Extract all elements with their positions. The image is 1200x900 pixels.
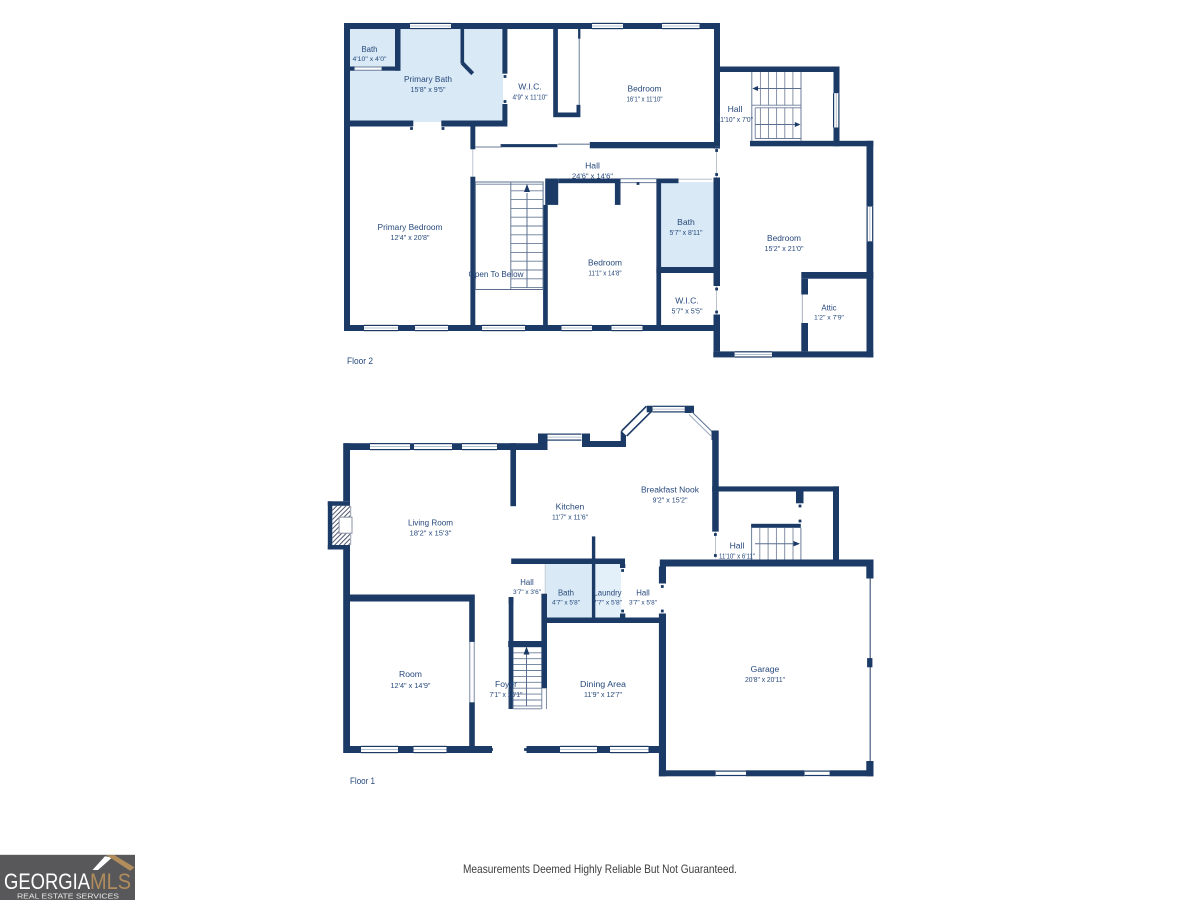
svg-text:Floor 1: Floor 1 (350, 776, 375, 786)
svg-text:Primary Bedroom: Primary Bedroom (378, 222, 443, 232)
svg-text:18'2" x 15'3": 18'2" x 15'3" (410, 528, 452, 537)
svg-text:Hall: Hall (636, 589, 650, 598)
svg-text:11'10" x 6'11": 11'10" x 6'11" (719, 551, 755, 560)
svg-text:4'10" x 4'0": 4'10" x 4'0" (353, 56, 388, 63)
svg-text:Primary Bath: Primary Bath (404, 74, 452, 84)
svg-text:3'7" x 3'6": 3'7" x 3'6" (513, 589, 542, 596)
svg-text:REAL ESTATE SERVICES: REAL ESTATE SERVICES (17, 892, 119, 900)
svg-text:20'8" x 20'11": 20'8" x 20'11" (745, 675, 785, 684)
svg-text:1'2" x 7'9": 1'2" x 7'9" (814, 314, 845, 321)
svg-text:Foyer: Foyer (495, 679, 517, 689)
svg-text:Hall: Hall (730, 541, 745, 551)
svg-text:5'7" x 5'5": 5'7" x 5'5" (672, 306, 703, 315)
svg-text:5'7" x 8'11": 5'7" x 8'11" (670, 228, 703, 237)
svg-text:Bath: Bath (361, 45, 377, 54)
svg-text:11'9" x 12'7": 11'9" x 12'7" (584, 690, 622, 699)
svg-text:11'1" x 14'8": 11'1" x 14'8" (589, 268, 622, 277)
svg-text:W.I.C.: W.I.C. (518, 82, 541, 92)
svg-text:Dining Area: Dining Area (580, 679, 626, 689)
svg-text:Hall: Hall (728, 104, 743, 114)
svg-text:Bedroom: Bedroom (767, 233, 801, 243)
svg-text:Room: Room (399, 669, 422, 679)
svg-text:Bedroom: Bedroom (628, 84, 662, 94)
svg-text:Open To Below: Open To Below (469, 269, 525, 279)
svg-text:Breakfast Nook: Breakfast Nook (641, 485, 700, 495)
svg-text:4'7" x 5'8": 4'7" x 5'8" (552, 599, 581, 606)
svg-text:Bath: Bath (677, 217, 695, 227)
svg-text:12'4" x 14'9": 12'4" x 14'9" (391, 681, 431, 690)
svg-text:7'1" x 15'1": 7'1" x 15'1" (490, 690, 523, 699)
svg-text:GEORGIA: GEORGIA (4, 869, 90, 894)
svg-text:3'7" x 5'8": 3'7" x 5'8" (629, 599, 658, 606)
svg-text:Bath: Bath (558, 589, 574, 598)
svg-text:Hall: Hall (585, 161, 600, 171)
svg-text:Garage: Garage (751, 664, 780, 674)
svg-text:W.I.C.: W.I.C. (675, 296, 698, 306)
svg-text:11'7" x 11'6": 11'7" x 11'6" (552, 512, 588, 521)
svg-text:11'10" x 7'0": 11'10" x 7'0" (717, 115, 753, 124)
svg-text:Bedroom: Bedroom (588, 258, 622, 268)
svg-text:Laundry: Laundry (593, 589, 621, 598)
svg-text:Measurements Deemed Highly Rel: Measurements Deemed Highly Reliable But … (463, 862, 737, 876)
svg-text:Living Room: Living Room (408, 518, 453, 528)
svg-text:9'2" x 15'2": 9'2" x 15'2" (653, 495, 688, 504)
svg-text:16'1" x 11'10": 16'1" x 11'10" (627, 94, 663, 103)
svg-text:Floor 2: Floor 2 (347, 356, 373, 366)
svg-text:7'7" x 5'8": 7'7" x 5'8" (593, 599, 623, 606)
svg-text:Hall: Hall (520, 578, 534, 587)
svg-text:4'9" x 11'10": 4'9" x 11'10" (513, 92, 548, 101)
svg-text:MLS: MLS (90, 869, 131, 894)
svg-text:Attic: Attic (821, 304, 836, 313)
svg-text:12'4" x 20'8": 12'4" x 20'8" (391, 233, 430, 242)
svg-text:Kitchen: Kitchen (556, 502, 585, 512)
svg-text:15'8" x 9'5": 15'8" x 9'5" (411, 85, 446, 94)
svg-text:24'6" x 14'6": 24'6" x 14'6" (572, 171, 613, 180)
svg-text:15'2" x 21'0": 15'2" x 21'0" (765, 244, 804, 253)
